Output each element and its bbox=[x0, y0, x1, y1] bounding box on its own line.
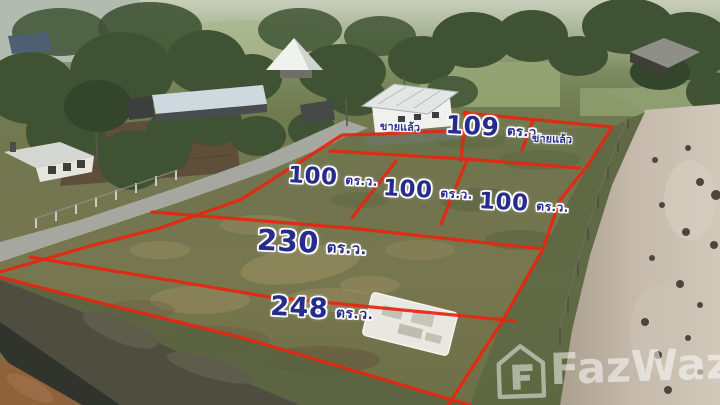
watermark-brand-text: FazWaz bbox=[549, 342, 720, 391]
plot-248-unit: ตร.ว. bbox=[336, 306, 374, 322]
plot-100-right-size: 100 bbox=[478, 190, 529, 216]
plot-100-middle-size: 100 bbox=[382, 177, 433, 203]
aerial-land-listing-photo: ขายแล้ว 109 ตร.ว. ขายแล้ว 100 ตร.ว. 100 … bbox=[0, 0, 720, 405]
watermark: FazWaz bbox=[495, 336, 720, 400]
plot-100-middle-unit: ตร.ว. bbox=[440, 187, 473, 201]
plot-100-left-size: 100 bbox=[287, 164, 338, 190]
plot-230-size: 230 bbox=[256, 226, 319, 258]
fazwaz-logo-icon bbox=[495, 342, 547, 400]
plot-100-middle-label: 100 ตร.ว. bbox=[382, 177, 473, 205]
plot-230-label: 230 ตร.ว. bbox=[256, 226, 368, 261]
plot-100-left-label: 100 ตร.ว. bbox=[287, 164, 378, 192]
plot-109-label: 109 ตร.ว. bbox=[445, 112, 543, 142]
right-plot-sold-label: ขายแล้ว bbox=[532, 133, 573, 145]
plot-100-right-label: 100 ตร.ว. bbox=[478, 190, 569, 218]
house-plot-sold-label: ขายแล้ว bbox=[380, 121, 421, 133]
plot-230-unit: ตร.ว. bbox=[326, 240, 367, 257]
plot-100-right-unit: ตร.ว. bbox=[536, 200, 569, 214]
plot-100-left-unit: ตร.ว. bbox=[345, 174, 378, 188]
plot-248-label: 248 ตร.ว. bbox=[270, 293, 375, 325]
plot-248-size: 248 bbox=[270, 293, 329, 323]
plot-109-size: 109 bbox=[445, 112, 500, 140]
dark-barn-left bbox=[126, 96, 155, 120]
